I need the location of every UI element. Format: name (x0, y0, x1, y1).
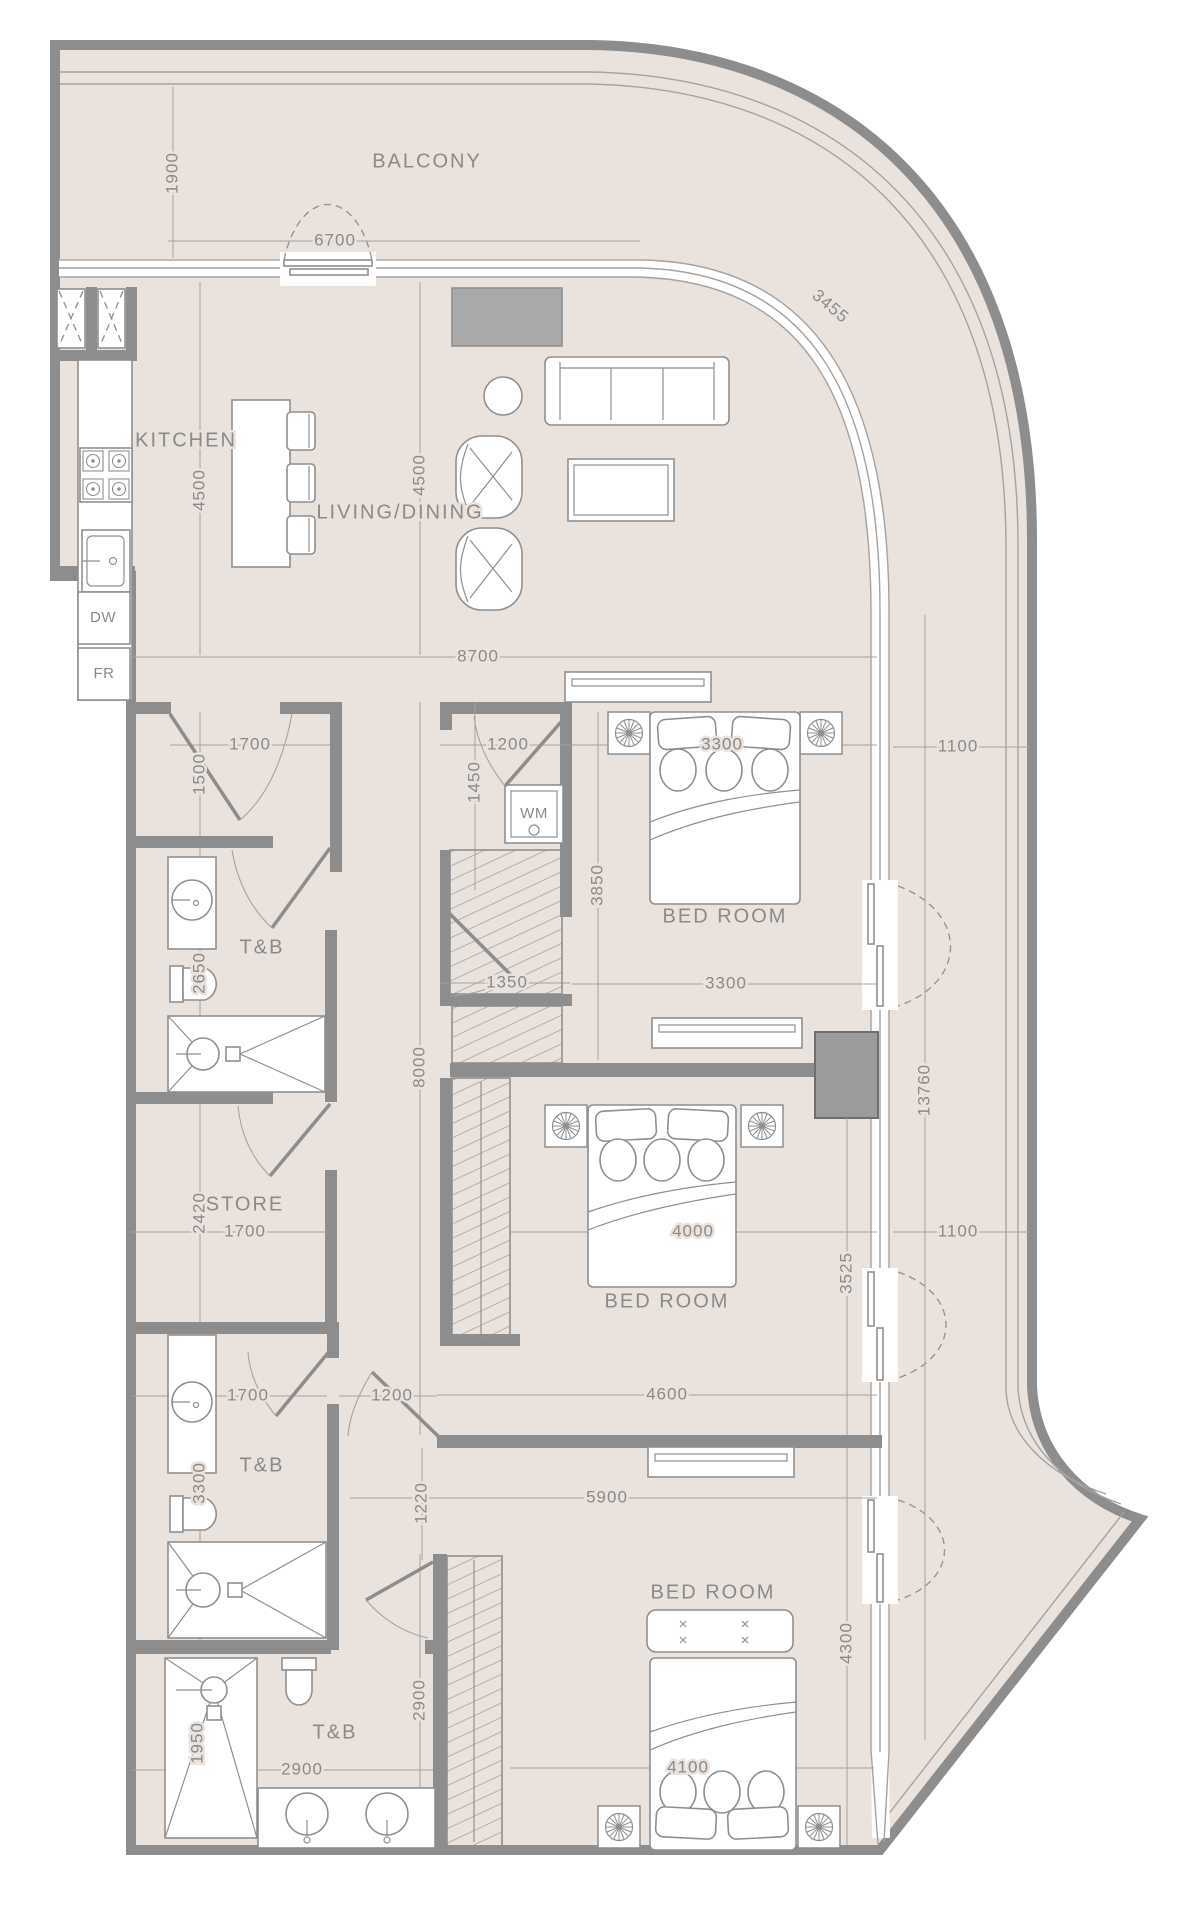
floorplan-page: BALCONYKITCHENLIVING/DININGBED ROOMBED R… (0, 0, 1183, 1920)
kitchen-sink (82, 530, 130, 592)
room-label-t-b-8: T&B (313, 1721, 358, 1743)
bed-2 (588, 1105, 736, 1287)
side-table (484, 377, 522, 415)
bedside-fan-icon (798, 1806, 840, 1848)
room-label-living-dining-2: LIVING/DINING (316, 501, 483, 523)
armchair-2 (456, 528, 522, 610)
dim-label-1450-9: 1450 (464, 761, 483, 803)
dim-label-2900-29: 2900 (409, 1679, 428, 1721)
room-label-t-b-7: T&B (240, 1454, 285, 1476)
dim-label-6700-1: 6700 (314, 230, 356, 249)
dim-label-3850-12: 3850 (587, 864, 606, 906)
dim-label-3300-13: 3300 (705, 973, 747, 992)
room-label-kitchen-1: KITCHEN (135, 429, 237, 451)
structural-column (815, 1032, 878, 1118)
dim-label-1700-6: 1700 (229, 734, 271, 753)
dim-label-8000-16: 8000 (409, 1046, 428, 1088)
dim-label-4600-25: 4600 (646, 1384, 688, 1403)
double-vanity (258, 1788, 435, 1848)
closet-shelf (452, 1006, 562, 1063)
dim-label-3525-22: 3525 (836, 1252, 855, 1294)
tv-unit (452, 288, 562, 346)
bed-3 (650, 1658, 796, 1850)
kitchen-island (232, 400, 290, 567)
bedside-fan-icon (598, 1806, 640, 1848)
dim-label-1900-0: 1900 (162, 152, 181, 194)
dim-label-4000-19: 4000 (672, 1221, 714, 1240)
dim-label-3300-10: 3300 (701, 734, 743, 753)
dim-label-1200-8: 1200 (487, 734, 529, 753)
room-label-t-b-6: T&B (240, 936, 285, 958)
dim-label-5900-28: 5900 (586, 1487, 628, 1506)
dim-label-13760-20: 13760 (914, 1064, 933, 1116)
appliance-label-wm-0: WM (520, 805, 548, 822)
island-stools (287, 412, 315, 554)
room-label-bed-room-5: BED ROOM (651, 1581, 776, 1603)
dim-label-1220-27: 1220 (411, 1482, 430, 1524)
room-label-balcony-0: BALCONY (372, 150, 482, 172)
console-bedroom2 (652, 1018, 802, 1048)
console-living-side (565, 672, 711, 702)
dim-label-1100-11: 1100 (938, 736, 979, 755)
shower (165, 1658, 257, 1838)
dim-label-4500-3: 4500 (189, 469, 208, 511)
shower (168, 1016, 325, 1092)
dim-label-1350-15: 1350 (486, 972, 528, 991)
dim-label-3300-26: 3300 (189, 1462, 208, 1504)
dim-label-2420-17: 2420 (189, 1192, 208, 1234)
shower (168, 1542, 326, 1638)
room-label-bed-room-3: BED ROOM (663, 905, 788, 927)
dim-label-2900-33: 2900 (281, 1759, 323, 1778)
appliance-label-fr-2: FR (94, 665, 115, 682)
coffee-table (568, 459, 674, 521)
floorplan-drawing: BALCONYKITCHENLIVING/DININGBED ROOMBED R… (0, 0, 1183, 1920)
dim-label-2650-14: 2650 (189, 952, 208, 994)
dim-label-1950-32: 1950 (187, 1722, 206, 1764)
toilet (282, 1658, 316, 1705)
dim-label-8700-5: 8700 (457, 646, 499, 665)
bedside-fan-icon (608, 712, 650, 754)
bedside-fan-icon (545, 1105, 587, 1147)
sofa (545, 357, 729, 425)
dim-label-1100-21: 1100 (938, 1221, 979, 1240)
bedside-fan-icon (741, 1105, 783, 1147)
dim-label-1700-18: 1700 (224, 1221, 266, 1240)
dim-label-1700-23: 1700 (227, 1385, 269, 1404)
dim-label-4500-4: 4500 (409, 454, 428, 496)
dim-label-4300-30: 4300 (836, 1622, 855, 1664)
bench (647, 1610, 793, 1652)
sideboard-bedroom3 (648, 1447, 794, 1477)
room-label-bed-room-4: BED ROOM (605, 1290, 730, 1312)
appliance-label-dw-1: DW (90, 609, 116, 626)
room-label-store-9: STORE (206, 1193, 285, 1215)
dim-label-1200-24: 1200 (371, 1385, 413, 1404)
dim-label-4100-31: 4100 (667, 1757, 709, 1776)
dim-label-1500-7: 1500 (189, 753, 208, 795)
bedside-fan-icon (800, 712, 842, 754)
